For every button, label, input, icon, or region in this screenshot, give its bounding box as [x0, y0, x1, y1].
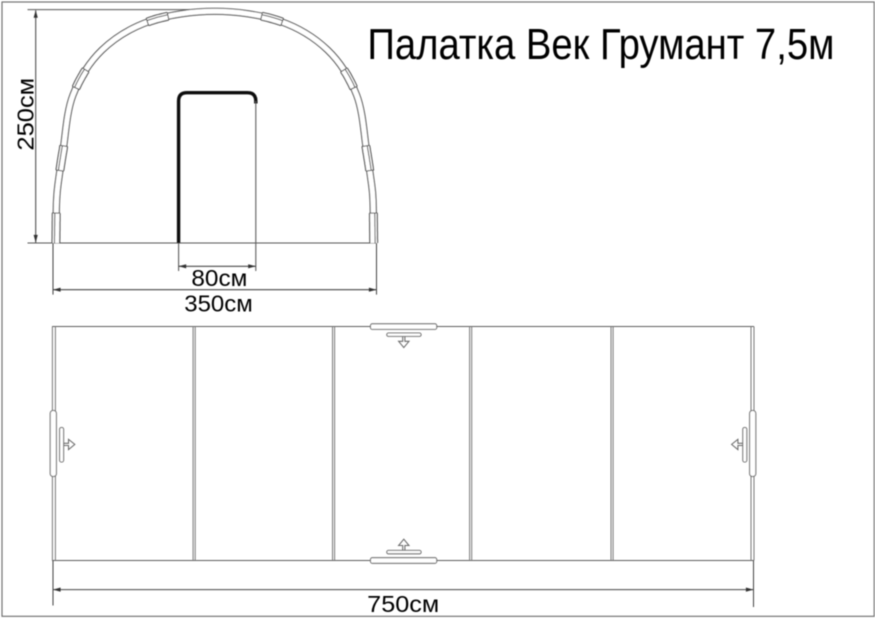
svg-text:Палатка Век Грумант 7,5м: Палатка Век Грумант 7,5м — [367, 20, 834, 69]
svg-text:80см: 80см — [191, 265, 247, 291]
svg-text:750см: 750см — [367, 591, 439, 617]
svg-text:350см: 350см — [184, 291, 253, 317]
svg-text:250см: 250см — [13, 78, 39, 151]
